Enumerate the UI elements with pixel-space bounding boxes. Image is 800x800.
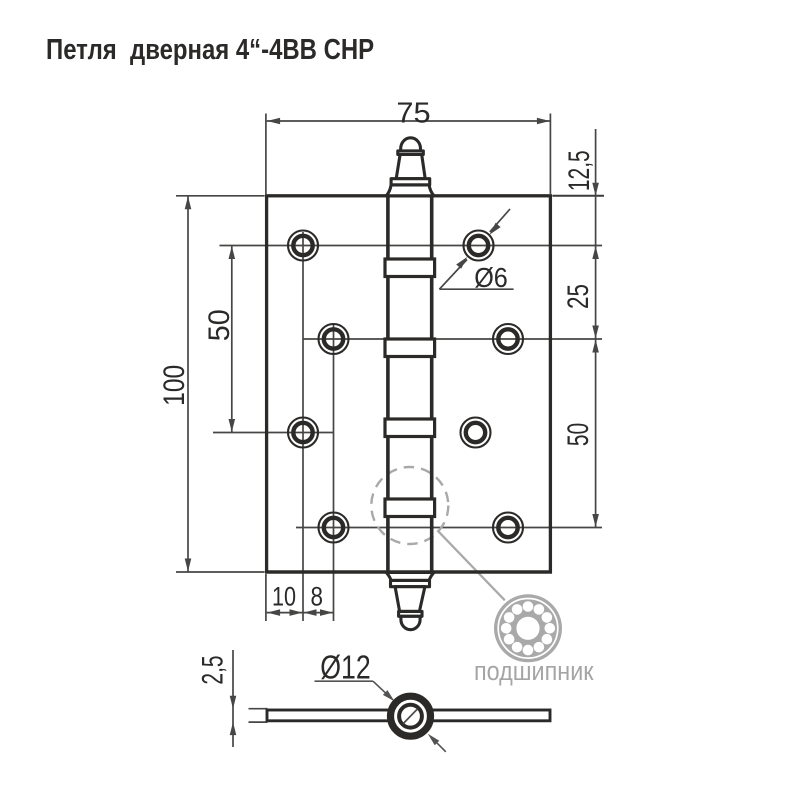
svg-text:12,5: 12,5: [564, 150, 596, 191]
svg-text:100: 100: [157, 365, 191, 406]
svg-text:25: 25: [561, 284, 595, 309]
svg-text:2,5: 2,5: [197, 655, 229, 684]
svg-text:Ø12: Ø12: [320, 650, 371, 686]
svg-text:8: 8: [311, 582, 323, 611]
svg-text:подшипник: подшипник: [474, 658, 594, 686]
svg-text:50: 50: [202, 309, 236, 341]
svg-text:10: 10: [272, 582, 296, 612]
svg-text:Петля дверная 4“-4BB CHP: Петля дверная 4“-4BB CHP: [46, 33, 374, 66]
svg-text:75: 75: [396, 97, 430, 129]
svg-text:Ø6: Ø6: [474, 262, 508, 294]
svg-text:50: 50: [563, 423, 595, 446]
